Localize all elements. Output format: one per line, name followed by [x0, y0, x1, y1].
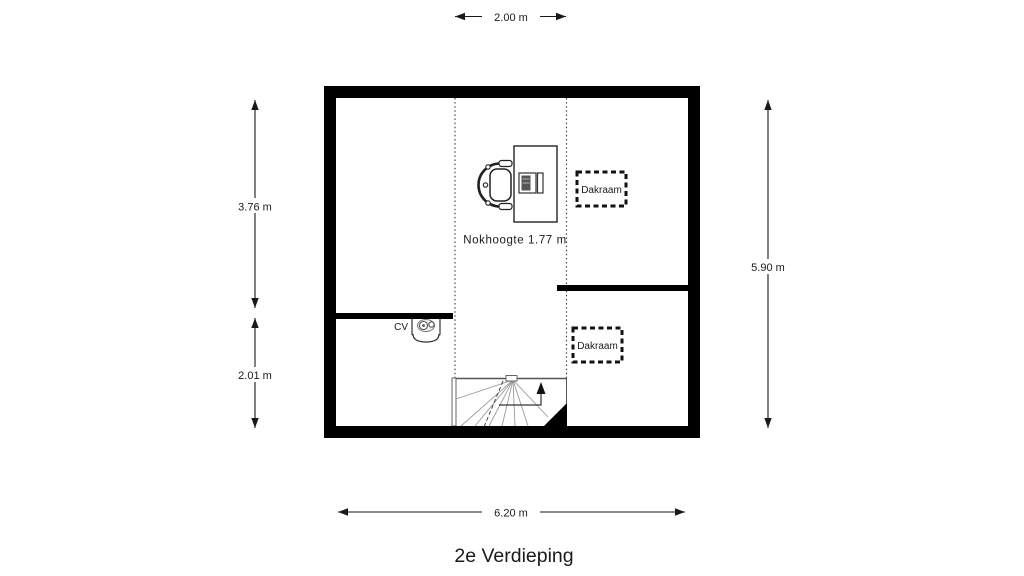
arrowhead-down-icon [764, 418, 771, 428]
arrowhead-right-icon [675, 508, 685, 515]
dimension-right: 5.90 m [742, 100, 794, 428]
floor-plan-page: Dakraam Dakraam Nokhoogte 1.77 m CV 2.00… [0, 0, 1024, 576]
arrowhead-up-icon [251, 100, 258, 110]
boiler-pipe-center [422, 324, 425, 327]
outer-wall-bottom [324, 426, 700, 438]
dimension-top: 2.00 m [455, 8, 566, 24]
cv-label: CV [394, 322, 408, 333]
dimension-bottom-label: 6.20 m [494, 508, 528, 520]
floor-plan-canvas: Dakraam Dakraam Nokhoogte 1.77 m CV 2.00… [0, 0, 1024, 576]
interior-wall-right [557, 285, 688, 291]
arrowhead-up-icon [251, 318, 258, 328]
floor-title: 2e Verdieping [454, 545, 573, 567]
arrowhead-right-icon [556, 13, 566, 20]
dimension-bottom: 6.20 m [338, 504, 685, 520]
chair-caster [486, 165, 490, 169]
chair-armrest [499, 161, 512, 167]
interior-wall-left [336, 313, 453, 319]
stairs-treads [456, 380, 548, 426]
roof-window-label: Dakraam [581, 185, 622, 196]
dimension-right-label: 5.90 m [751, 262, 785, 274]
boiler-pipe-icon [429, 322, 434, 327]
arrowhead-up-icon [764, 100, 771, 110]
outer-wall-top [324, 86, 700, 98]
dimension-left-lower: 2.01 m [229, 318, 281, 428]
stairs-solid-corner [540, 403, 567, 430]
computer-tower [538, 173, 544, 193]
dimension-left-upper-label: 3.76 m [238, 202, 272, 214]
chair-caster [483, 183, 487, 187]
dimension-top-label: 2.00 m [494, 12, 528, 24]
arrowhead-left-icon [338, 508, 348, 515]
arrowhead-left-icon [455, 13, 465, 20]
ridge-height-label: Nokhoogte 1.77 m [463, 235, 567, 247]
chair-seat [490, 169, 511, 201]
boiler-front-lip [413, 334, 439, 342]
chair-caster [486, 201, 490, 205]
cv-boiler-unit [412, 318, 440, 342]
arrowhead-down-icon [251, 298, 258, 308]
outer-wall-left [324, 86, 336, 438]
stairs-left-stringer [452, 378, 456, 426]
outer-wall-right [688, 86, 700, 438]
chair-armrest [499, 204, 512, 210]
stairs-newel-post [506, 376, 517, 382]
staircase [452, 376, 567, 431]
arrowhead-down-icon [251, 418, 258, 428]
stairs-up-arrow-icon [537, 382, 546, 394]
dimension-left-lower-label: 2.01 m [238, 370, 272, 382]
roof-window-bottom: Dakraam [573, 328, 622, 362]
roof-window-top: Dakraam [577, 172, 626, 206]
dimension-left-upper: 3.76 m [229, 100, 281, 308]
workstation [479, 146, 558, 222]
roof-window-label: Dakraam [577, 341, 618, 352]
